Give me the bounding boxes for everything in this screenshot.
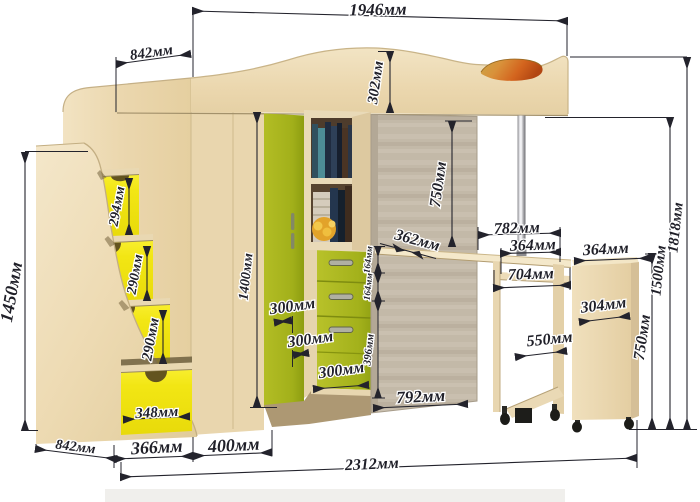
svg-text:704мм: 704мм bbox=[508, 265, 555, 284]
svg-text:348мм: 348мм bbox=[134, 404, 179, 422]
svg-text:2312мм: 2312мм bbox=[343, 455, 399, 474]
svg-text:400мм: 400мм bbox=[206, 434, 260, 457]
svg-text:792мм: 792мм bbox=[396, 386, 446, 408]
svg-text:1946мм: 1946мм bbox=[349, 0, 407, 19]
svg-text:782мм: 782мм bbox=[494, 219, 541, 238]
svg-text:364мм: 364мм bbox=[581, 240, 629, 259]
svg-text:366мм: 366мм bbox=[129, 436, 183, 459]
svg-text:364мм: 364мм bbox=[509, 236, 557, 255]
